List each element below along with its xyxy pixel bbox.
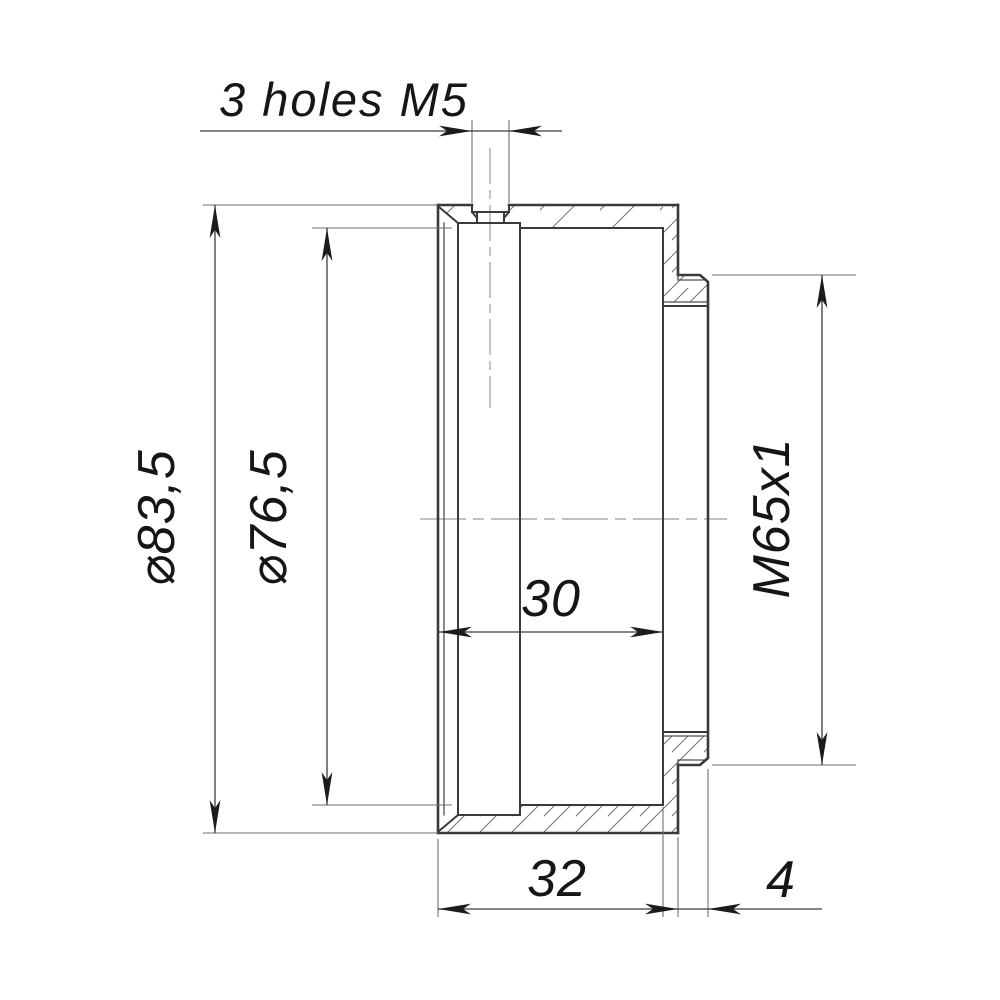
- bore-surfaces: [520, 228, 663, 805]
- thread-flange-outline: [678, 275, 708, 765]
- hatch-right-wall-top: [663, 205, 678, 302]
- centerlines: [420, 148, 727, 519]
- hatch-top-wall-hole-left: [460, 205, 472, 223]
- label-bore-depth: 30: [521, 570, 581, 628]
- thread-minor-lines: [678, 275, 703, 765]
- technical-drawing: 3 holes M5 ⌀83,5 ⌀76,5 30 M65x1 32 4: [0, 0, 1000, 1000]
- label-inner-diameter: ⌀76,5: [240, 449, 298, 587]
- hatch-top-wall: [520, 205, 663, 228]
- label-holes-note: 3 holes M5: [219, 73, 469, 126]
- label-body-length: 32: [527, 850, 587, 908]
- hatch-right-wall-bottom: [663, 736, 678, 833]
- drawing-canvas: 3 holes M5 ⌀83,5 ⌀76,5 30 M65x1 32 4: [0, 0, 1000, 1000]
- hatch-top-wall-left: [439, 205, 460, 223]
- dimension-labels: 3 holes M5 ⌀83,5 ⌀76,5 30 M65x1 32 4: [128, 73, 801, 909]
- label-thread: M65x1: [743, 437, 801, 598]
- dimension-arrowheads: [210, 126, 828, 915]
- hatch-bottom-wall: [520, 805, 663, 833]
- hatch-top-wall-hole-right: [509, 205, 520, 223]
- label-outer-diameter: ⌀83,5: [128, 449, 186, 587]
- hatch-bottom-wall-left: [439, 815, 460, 833]
- label-thread-length: 4: [766, 851, 796, 909]
- hatch-bottom-wall-groove: [460, 815, 520, 833]
